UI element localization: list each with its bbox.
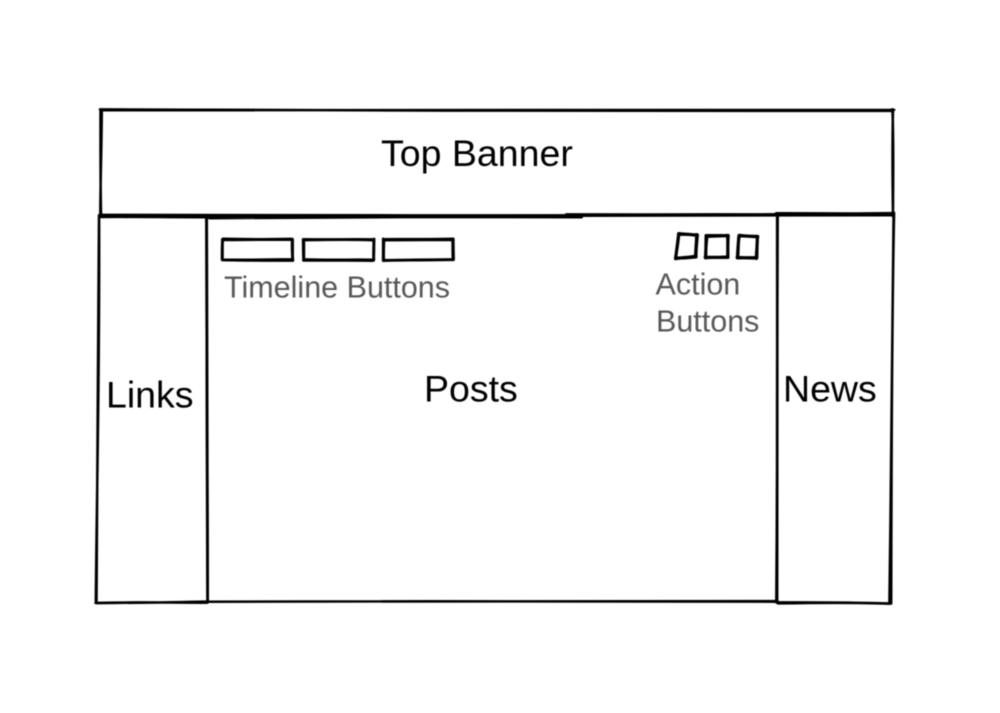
svg-text:Posts: Posts <box>424 368 518 410</box>
svg-text:Links: Links <box>106 374 194 416</box>
svg-text:Top Banner: Top Banner <box>381 132 573 174</box>
svg-text:Action: Action <box>656 268 741 302</box>
svg-text:News: News <box>783 368 877 410</box>
svg-text:Timeline Buttons: Timeline Buttons <box>224 271 450 305</box>
svg-text:Buttons: Buttons <box>656 305 759 339</box>
